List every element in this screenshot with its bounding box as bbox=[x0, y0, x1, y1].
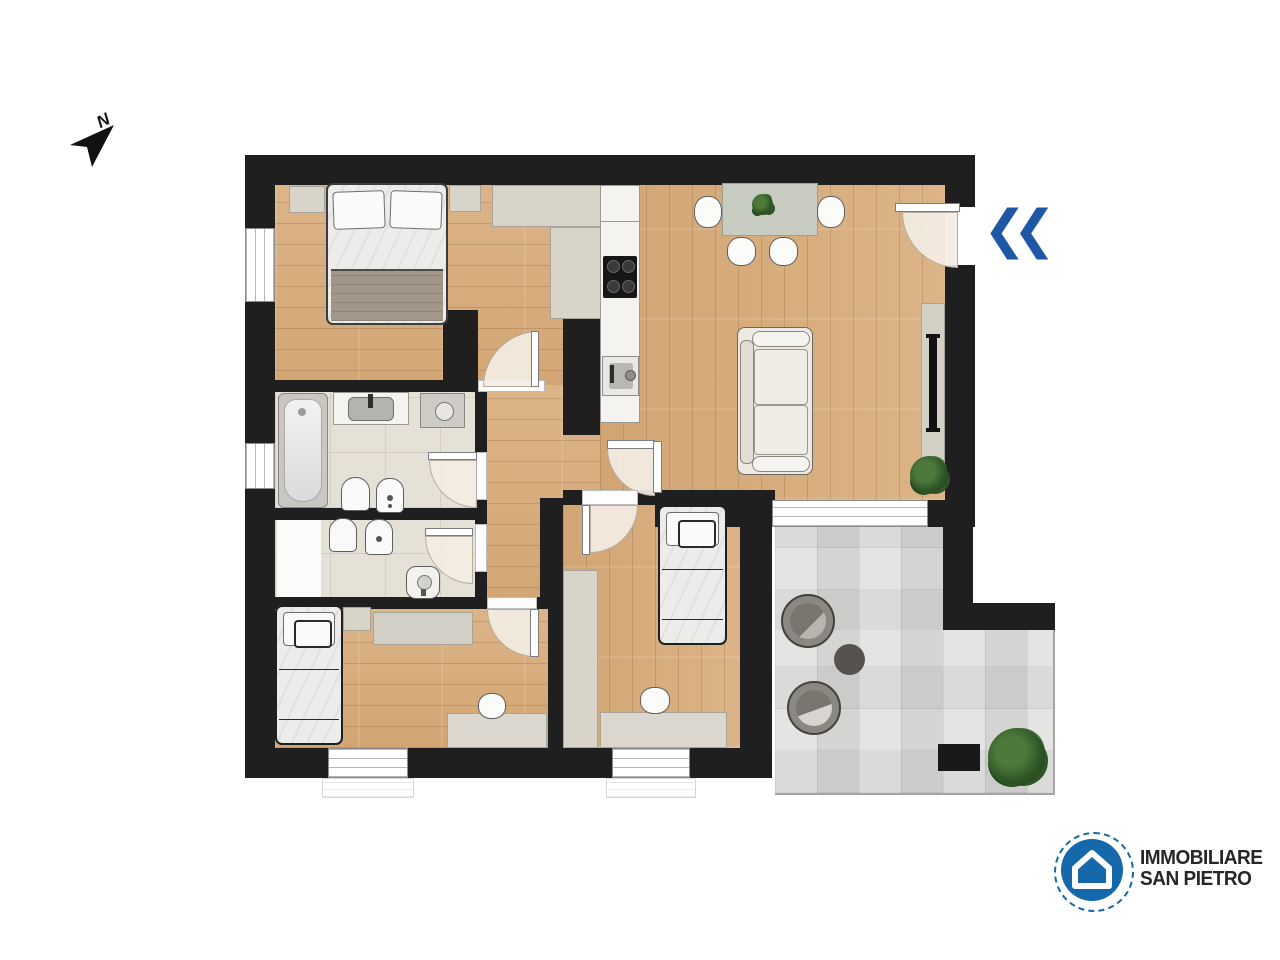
window-bedroom-2 bbox=[328, 748, 408, 778]
bidet bbox=[376, 478, 404, 513]
window-bedroom-main bbox=[245, 228, 275, 302]
lounge-chair-2 bbox=[787, 681, 841, 735]
bedroom-3-desk bbox=[600, 712, 727, 748]
brand-line-2: SAN PIETRO bbox=[1140, 869, 1264, 890]
washing-machine bbox=[420, 393, 465, 428]
bedroom-2-chair bbox=[478, 693, 506, 719]
window-sill-bedroom-2 bbox=[322, 778, 414, 798]
nightstand-left bbox=[289, 186, 325, 213]
wall-bedroom-bathroom bbox=[275, 380, 478, 392]
nightstand-right bbox=[449, 185, 481, 212]
threshold-bedroom-3 bbox=[582, 490, 638, 505]
terrace-storage-box bbox=[938, 744, 980, 771]
dining-chair bbox=[694, 196, 722, 228]
shower bbox=[406, 566, 440, 599]
entry-door-leaf bbox=[895, 203, 960, 212]
dining-chair bbox=[817, 196, 845, 228]
toilet-2 bbox=[329, 518, 357, 552]
tv bbox=[929, 337, 937, 429]
floor-plan-page: N bbox=[0, 0, 1280, 960]
bed-blanket bbox=[331, 269, 443, 321]
terrace-plant-icon bbox=[988, 728, 1046, 786]
window-sill-bedroom-3 bbox=[606, 778, 696, 798]
window-bedroom-3 bbox=[612, 748, 690, 778]
wall-right-lower bbox=[945, 265, 975, 527]
wall-right-upper bbox=[945, 155, 975, 207]
brand-logo: IMMOBILIARE SAN PIETRO bbox=[1052, 828, 1262, 928]
living-door-leaf bbox=[607, 440, 655, 449]
double-bed bbox=[326, 183, 448, 325]
kitchen-sink bbox=[602, 356, 639, 396]
compass: N bbox=[62, 105, 132, 190]
bedroom-2-nightstand bbox=[343, 607, 371, 631]
bathroom-2-door-leaf bbox=[425, 528, 473, 536]
tv-foot bbox=[926, 428, 940, 432]
toilet bbox=[341, 477, 370, 511]
wall-bedroom3-top-a bbox=[563, 490, 582, 505]
living-door-jamb bbox=[653, 441, 662, 493]
kitchen-cabinet bbox=[600, 185, 640, 222]
bathroom-1-door-leaf bbox=[428, 452, 477, 460]
bathroom-2-shower-area bbox=[277, 518, 321, 597]
vanity-sink bbox=[333, 392, 409, 425]
wall-terrace-left bbox=[740, 500, 772, 778]
wall-hall-center bbox=[540, 498, 563, 597]
bedroom-3-chair bbox=[640, 687, 670, 714]
cooktop bbox=[603, 256, 637, 298]
entrance-direction-icon: ❮❮ bbox=[983, 215, 1043, 255]
bathtub bbox=[278, 393, 328, 508]
living-plant-icon bbox=[910, 456, 948, 494]
wall-top bbox=[245, 155, 975, 185]
terrace-side-table bbox=[834, 644, 865, 675]
north-arrow-icon: N bbox=[62, 105, 132, 190]
window-bathroom-1 bbox=[245, 443, 275, 489]
wall-terrace-spur bbox=[943, 603, 1055, 630]
bedroom-3-wardrobe bbox=[563, 570, 598, 748]
dining-chair bbox=[769, 237, 798, 266]
dining-chair bbox=[727, 237, 756, 266]
wardrobe-corner-top bbox=[492, 185, 602, 227]
sofa bbox=[737, 327, 813, 475]
table-plant-icon bbox=[752, 194, 773, 215]
house-in-circle-icon bbox=[1061, 839, 1123, 901]
lounge-chair-1 bbox=[781, 594, 835, 648]
wall-living-terrace-b bbox=[928, 500, 948, 527]
bedroom-main-door-leaf bbox=[531, 331, 539, 387]
bedroom-2-door-leaf bbox=[530, 609, 539, 657]
wall-bathroom-bottom-b bbox=[537, 597, 563, 609]
single-bed-3 bbox=[658, 505, 727, 645]
bidet-2 bbox=[365, 519, 393, 555]
bedroom-3-door-leaf bbox=[582, 505, 590, 555]
tv-foot bbox=[926, 334, 940, 338]
threshold-bathroom-2 bbox=[475, 524, 487, 572]
brand-line-1: IMMOBILIARE bbox=[1140, 848, 1264, 869]
bedroom-2-dresser bbox=[373, 612, 473, 645]
single-bed-2 bbox=[275, 605, 343, 745]
pillow bbox=[389, 190, 442, 230]
window-living-terrace bbox=[772, 500, 928, 527]
wardrobe-corner-side bbox=[550, 227, 602, 319]
threshold-bedroom-2 bbox=[487, 597, 537, 609]
pillow bbox=[332, 190, 385, 230]
